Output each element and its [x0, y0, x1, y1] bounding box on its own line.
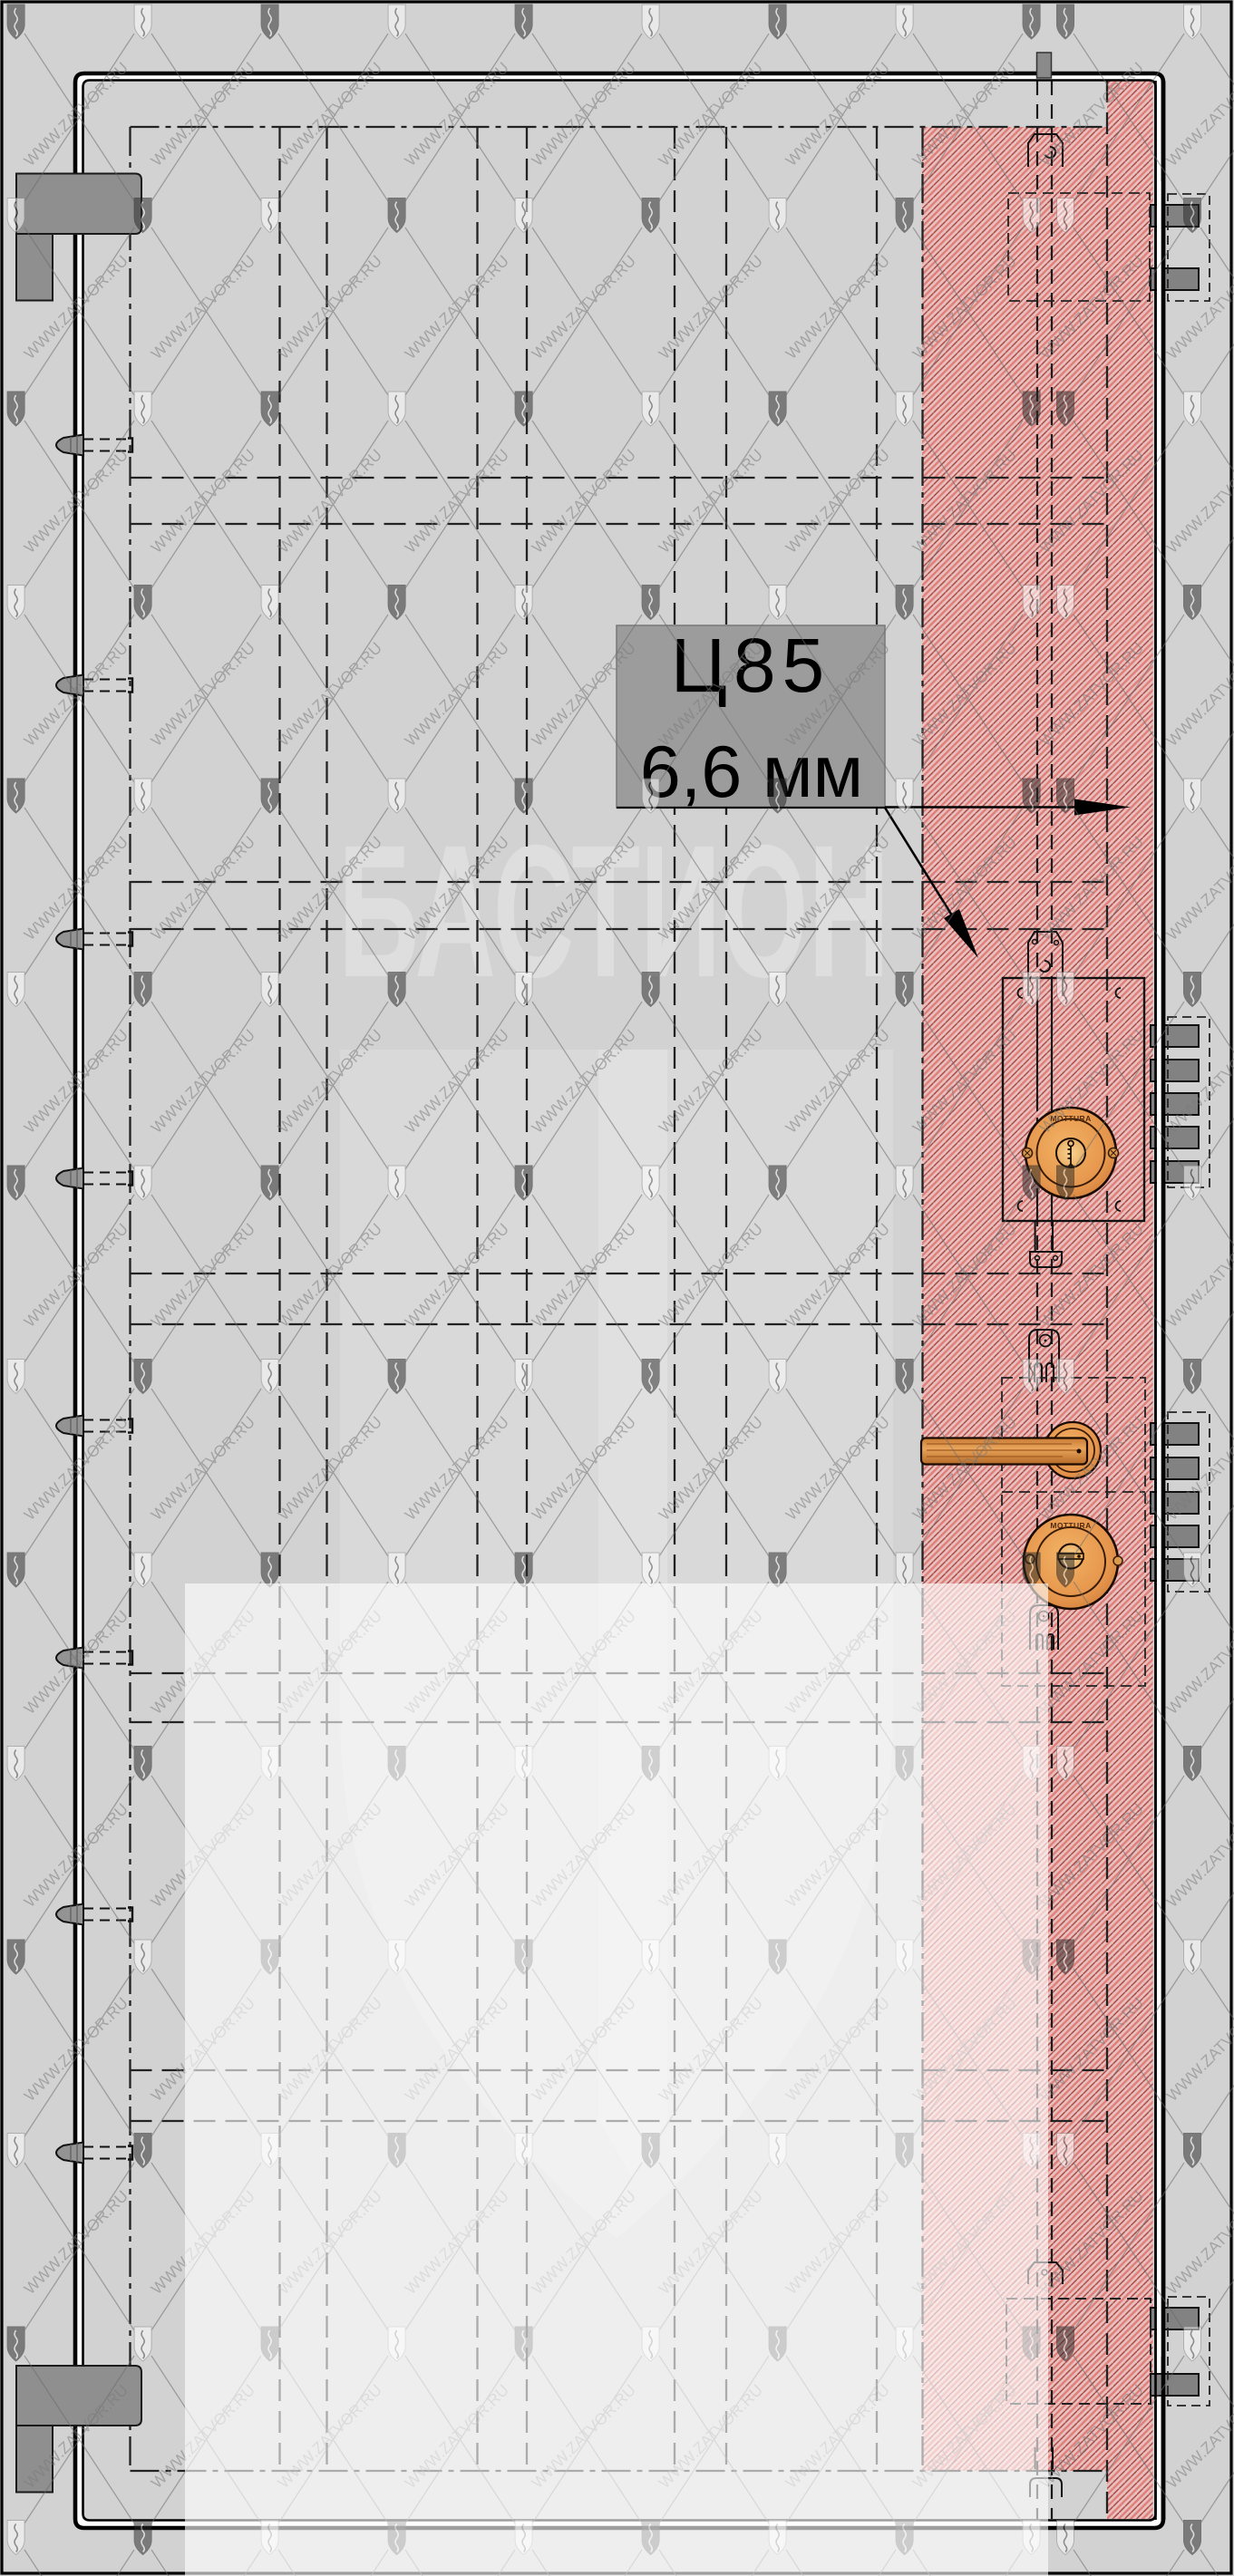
svg-text:MOTTURA: MOTTURA: [1050, 1521, 1091, 1530]
